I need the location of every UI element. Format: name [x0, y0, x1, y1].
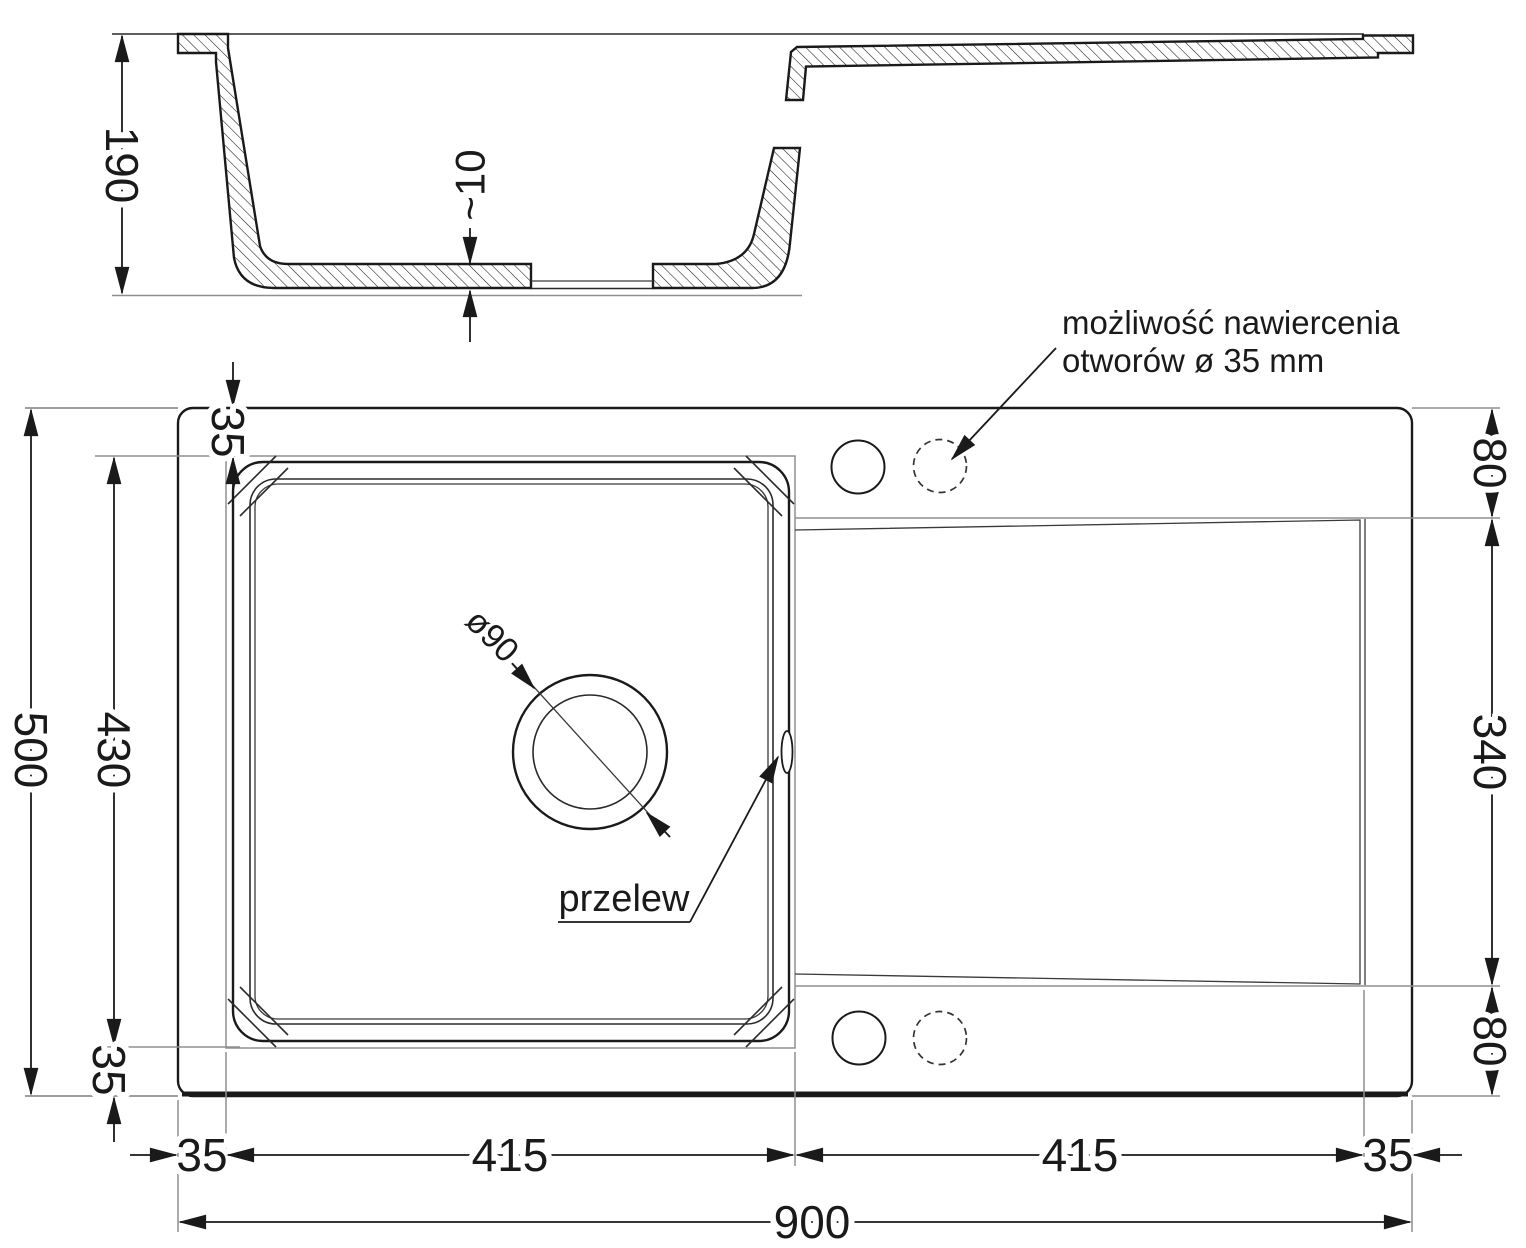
dim-text-500: 500	[5, 712, 57, 789]
drain-diameter-label: ø90	[458, 602, 526, 670]
dim-text-10: ~10	[447, 149, 494, 220]
dim-section-height: 190	[96, 36, 148, 293]
sink-drawing-svg: 190 ~10	[0, 0, 1526, 1248]
dim-text-80-top: 80	[1464, 437, 1516, 488]
faucet-hole-bottom	[833, 1012, 886, 1065]
optional-hole-bottom-dashed	[914, 1012, 967, 1065]
plan-view: ø90 przelew możliwość nawiercenia otworó…	[5, 304, 1516, 1248]
dim-row-segments: 35 415 415 35	[130, 1129, 1462, 1181]
drain-hole: ø90	[458, 602, 670, 837]
dim-bottom-thickness: ~10	[447, 149, 494, 342]
dim-text-35-top: 35	[202, 406, 254, 457]
technical-drawing-page: 190 ~10	[0, 0, 1526, 1248]
drill-note-line2: otworów ø 35 mm	[1062, 342, 1324, 379]
drain-outer-circle	[513, 675, 667, 829]
bowl-corner-chamfers	[228, 456, 794, 1047]
bowl-outer-edge	[233, 462, 789, 1041]
dim-drainer-depth: 340	[1464, 520, 1516, 984]
section-right-wall-lower	[653, 148, 800, 288]
dim-text-190: 190	[96, 127, 148, 204]
overflow-hole	[782, 731, 793, 773]
dim-text-415-right: 415	[1042, 1129, 1119, 1181]
drill-note-callout: możliwość nawiercenia otworów ø 35 mm	[952, 304, 1400, 459]
drainer-surface	[795, 520, 1360, 984]
dim-text-35-right: 35	[1362, 1129, 1413, 1181]
bowl-inner-edge-2	[255, 484, 768, 1019]
dim-bowl-depth: 430	[88, 458, 140, 1045]
bowl-inner-edge-1	[250, 479, 773, 1024]
optional-hole-top-dashed	[914, 440, 967, 493]
dim-text-35-bottom: 35	[83, 1044, 135, 1095]
dim-rim-bottom: 35	[83, 1044, 135, 1142]
dim-text-340: 340	[1464, 714, 1516, 791]
dim-text-430: 430	[88, 712, 140, 789]
overflow-label: przelew	[559, 878, 690, 920]
overflow-callout: przelew	[558, 757, 778, 922]
dim-text-415-left: 415	[472, 1129, 549, 1181]
dim-total-width: 900	[180, 1196, 1410, 1248]
section-view: 190 ~10	[96, 34, 1413, 342]
dim-rim-top: 35	[202, 362, 254, 505]
dim-total-depth: 500	[5, 410, 57, 1094]
dim-text-35-left: 35	[176, 1129, 227, 1181]
dim-text-900: 900	[774, 1196, 851, 1248]
dim-hole-band-bottom: 80	[1464, 988, 1516, 1094]
section-drainer-board	[786, 36, 1413, 101]
dim-text-80-bottom: 80	[1464, 1015, 1516, 1066]
drill-note-line1: możliwość nawiercenia	[1062, 304, 1400, 341]
faucet-hole-top	[832, 441, 885, 494]
dim-hole-band-top: 80	[1464, 410, 1516, 516]
bowl-rim-reference	[226, 456, 795, 1048]
